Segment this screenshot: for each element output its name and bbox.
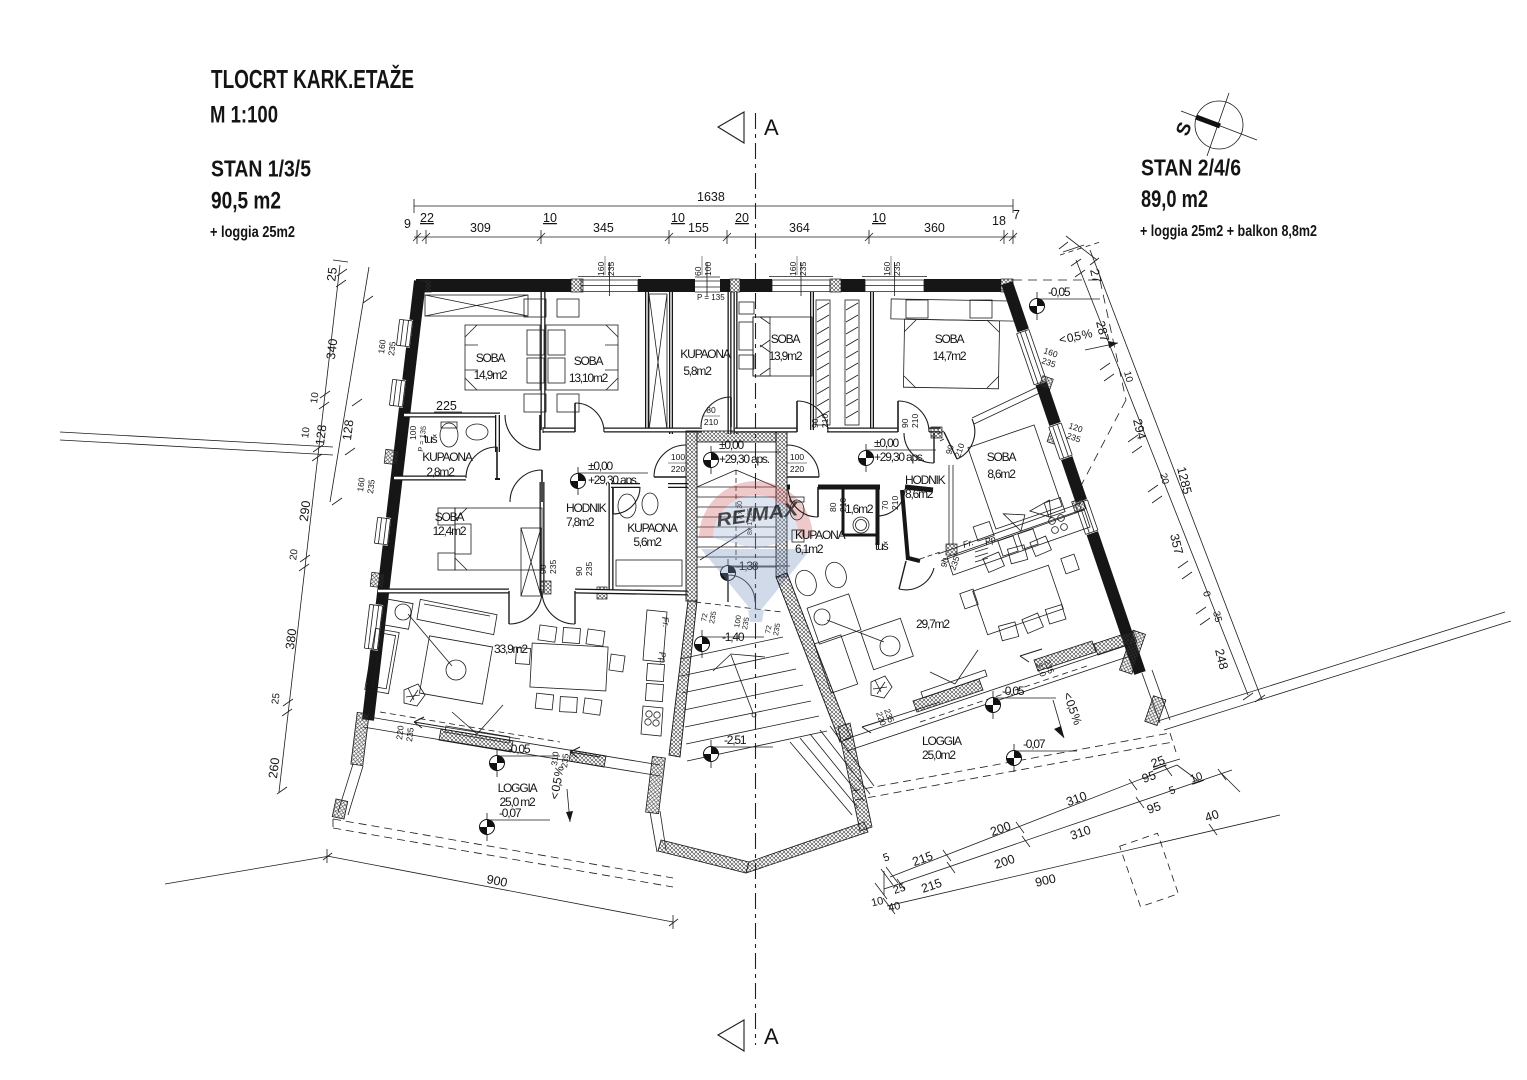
- svg-text:29,7m2: 29,7m2: [916, 617, 950, 631]
- svg-text:-0,07: -0,07: [499, 806, 522, 820]
- svg-text:+ loggia 25m2: + loggia 25m2: [210, 224, 295, 241]
- svg-text:KUPAONA: KUPAONA: [680, 347, 731, 361]
- svg-text:33,9m2: 33,9m2: [494, 642, 528, 656]
- svg-text:±0,00: ±0,00: [874, 436, 899, 450]
- svg-text:235: 235: [892, 262, 902, 276]
- svg-text:210: 210: [704, 417, 718, 427]
- svg-text:80: 80: [706, 405, 716, 415]
- svg-text:TLOCRT KARK.ETAŽE: TLOCRT KARK.ETAŽE: [211, 64, 414, 94]
- svg-text:-0,05: -0,05: [1048, 285, 1071, 299]
- svg-text:LOGGIA: LOGGIA: [922, 734, 962, 748]
- svg-text:SOBA: SOBA: [935, 332, 965, 346]
- svg-text:25: 25: [324, 267, 340, 283]
- svg-text:210: 210: [820, 414, 830, 428]
- svg-text:25,0m2: 25,0m2: [922, 748, 956, 762]
- svg-text:SOBA: SOBA: [476, 351, 506, 365]
- svg-text:10: 10: [543, 211, 557, 225]
- svg-text:P = 135: P = 135: [697, 293, 725, 302]
- svg-text:70: 70: [880, 500, 890, 510]
- svg-text:100: 100: [703, 262, 713, 276]
- svg-text:380: 380: [283, 628, 299, 650]
- svg-text:7,8m2: 7,8m2: [566, 515, 595, 529]
- svg-text:220: 220: [790, 464, 804, 474]
- svg-text:-0,05: -0,05: [1002, 684, 1025, 698]
- svg-text:Fr.: Fr.: [660, 616, 671, 628]
- svg-text:10: 10: [309, 391, 321, 404]
- svg-text:10: 10: [671, 211, 685, 225]
- svg-text:90: 90: [538, 564, 548, 574]
- svg-text:89,0 m2: 89,0 m2: [1141, 186, 1208, 213]
- svg-text:235: 235: [584, 562, 594, 576]
- svg-text:345: 345: [593, 221, 614, 235]
- svg-text:A: A: [764, 115, 779, 140]
- svg-text:155: 155: [688, 221, 709, 235]
- svg-text:1,6m2: 1,6m2: [845, 502, 874, 516]
- svg-text:100: 100: [790, 452, 804, 462]
- svg-text:220: 220: [671, 464, 685, 474]
- svg-text:2,8m2: 2,8m2: [426, 465, 455, 479]
- svg-text:8,6m2: 8,6m2: [987, 467, 1016, 481]
- svg-text:25: 25: [270, 692, 282, 705]
- svg-text:+ loggia 25m2 + balkon 8,8m2: + loggia 25m2 + balkon 8,8m2: [1140, 223, 1317, 240]
- svg-text:HODNIK: HODNIK: [566, 501, 607, 515]
- svg-text:235: 235: [365, 479, 377, 495]
- svg-text:LOGGIA: LOGGIA: [498, 781, 538, 795]
- svg-text:10: 10: [872, 211, 886, 225]
- svg-text:60: 60: [693, 266, 703, 276]
- svg-text:-0,07: -0,07: [1023, 737, 1046, 751]
- svg-text:160: 160: [596, 262, 606, 276]
- svg-text:235: 235: [606, 262, 616, 276]
- svg-text:290: 290: [297, 500, 313, 522]
- svg-text:360: 360: [924, 221, 945, 235]
- svg-text:210: 210: [910, 414, 920, 428]
- svg-text:-2,51: -2,51: [724, 733, 747, 747]
- svg-text:235: 235: [559, 753, 571, 769]
- svg-text:80: 80: [828, 502, 838, 512]
- svg-text:-1,40: -1,40: [722, 630, 745, 644]
- svg-text:90,5 m2: 90,5 m2: [211, 188, 281, 215]
- svg-text:340: 340: [324, 338, 340, 360]
- svg-text:+29,30 aps.: +29,30 aps.: [719, 452, 770, 466]
- svg-text:10: 10: [300, 426, 312, 439]
- svg-text:22: 22: [420, 211, 434, 225]
- svg-text:SOBA: SOBA: [574, 354, 604, 368]
- svg-text:1638: 1638: [697, 190, 725, 204]
- svg-text:90: 90: [810, 418, 820, 428]
- svg-text:18: 18: [992, 214, 1006, 228]
- svg-text:20: 20: [288, 548, 300, 561]
- svg-text:±0,00: ±0,00: [588, 459, 613, 473]
- svg-text:SOBA: SOBA: [435, 510, 465, 524]
- svg-text:KUPAONA: KUPAONA: [422, 450, 473, 464]
- svg-text:7: 7: [1013, 208, 1020, 222]
- svg-text:-0,05: -0,05: [508, 742, 531, 756]
- svg-text:HODNIK: HODNIK: [905, 473, 946, 487]
- svg-text:13,10m2: 13,10m2: [569, 371, 609, 385]
- svg-text:260: 260: [266, 757, 282, 779]
- svg-text:14,7m2: 14,7m2: [933, 349, 967, 363]
- svg-text:210: 210: [890, 496, 900, 510]
- svg-text:225: 225: [436, 399, 457, 413]
- svg-text:tuš: tuš: [875, 539, 889, 553]
- svg-text:5,8m2: 5,8m2: [683, 364, 712, 378]
- svg-text:235: 235: [404, 727, 416, 743]
- svg-text:128: 128: [313, 424, 329, 446]
- svg-text:364: 364: [789, 221, 810, 235]
- svg-text:STAN 2/4/6: STAN 2/4/6: [1141, 155, 1241, 181]
- svg-text:14,9m2: 14,9m2: [474, 368, 508, 382]
- svg-text:100: 100: [671, 452, 685, 462]
- svg-text:A: A: [764, 1024, 779, 1049]
- svg-text:90: 90: [574, 566, 584, 576]
- svg-text:+29,30 aps.: +29,30 aps.: [874, 450, 925, 464]
- svg-text:6,1m2: 6,1m2: [795, 542, 824, 556]
- svg-text:9: 9: [404, 217, 411, 231]
- svg-text:128: 128: [340, 419, 356, 441]
- svg-text:160: 160: [788, 262, 798, 276]
- svg-text:309: 309: [470, 221, 491, 235]
- svg-text:20: 20: [735, 211, 749, 225]
- svg-text:235: 235: [386, 341, 398, 357]
- svg-text:M 1:100: M 1:100: [210, 102, 278, 129]
- svg-text:KUPAONA: KUPAONA: [795, 528, 846, 542]
- svg-text:KUPAONA: KUPAONA: [627, 521, 678, 535]
- svg-text:60: 60: [398, 430, 408, 440]
- svg-text:STAN 1/3/5: STAN 1/3/5: [211, 156, 311, 182]
- svg-text:90: 90: [900, 418, 910, 428]
- svg-text:13,9m2: 13,9m2: [769, 349, 803, 363]
- svg-text:12,4m2: 12,4m2: [433, 524, 467, 538]
- svg-text:5,6m2: 5,6m2: [633, 535, 662, 549]
- svg-text:160: 160: [882, 262, 892, 276]
- svg-text:100: 100: [408, 426, 418, 440]
- svg-text:SOBA: SOBA: [987, 450, 1017, 464]
- svg-text:235: 235: [798, 262, 808, 276]
- svg-text:±0,00: ±0,00: [719, 438, 744, 452]
- svg-text:235: 235: [548, 560, 558, 574]
- svg-text:Pp.: Pp.: [657, 651, 668, 665]
- svg-text:SOBA: SOBA: [771, 332, 801, 346]
